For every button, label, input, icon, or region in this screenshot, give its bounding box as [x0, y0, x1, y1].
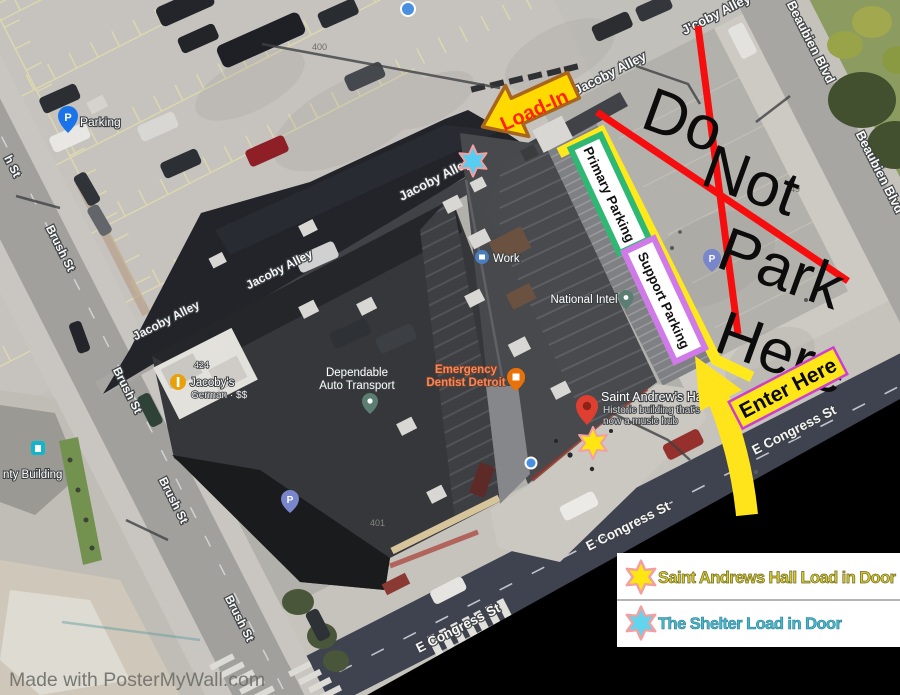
svg-text:Saint Andrew's Hall: Saint Andrew's Hall [601, 390, 708, 404]
svg-text:Dentist Detroit: Dentist Detroit [426, 377, 505, 389]
svg-text:Historic building that's: Historic building that's [603, 405, 700, 416]
svg-text:Made with PosterMyWall.com: Made with PosterMyWall.com [9, 669, 265, 691]
svg-text:Dependable: Dependable [326, 367, 388, 379]
svg-text:Jacoby's: Jacoby's [190, 377, 235, 389]
svg-text:nty Building: nty Building [3, 469, 62, 481]
svg-text:Work: Work [493, 253, 520, 265]
svg-text:P: P [64, 112, 71, 124]
svg-text:now a music hub: now a music hub [603, 416, 678, 427]
svg-text:401: 401 [370, 518, 385, 528]
svg-text:Auto Transport: Auto Transport [319, 380, 395, 392]
svg-text:P: P [287, 495, 294, 506]
svg-text:Parking: Parking [80, 115, 121, 129]
svg-text:Emergency: Emergency [435, 364, 498, 376]
svg-text:400: 400 [312, 42, 327, 52]
svg-text:The Shelter Load in Door: The Shelter Load in Door [658, 615, 843, 633]
svg-text:National Intel: National Intel [550, 294, 617, 306]
svg-text:Saint Andrews Hall Load in Doo: Saint Andrews Hall Load in Door [658, 569, 897, 587]
svg-text:424: 424 [194, 360, 209, 370]
svg-text:German · $$: German · $$ [191, 390, 248, 401]
